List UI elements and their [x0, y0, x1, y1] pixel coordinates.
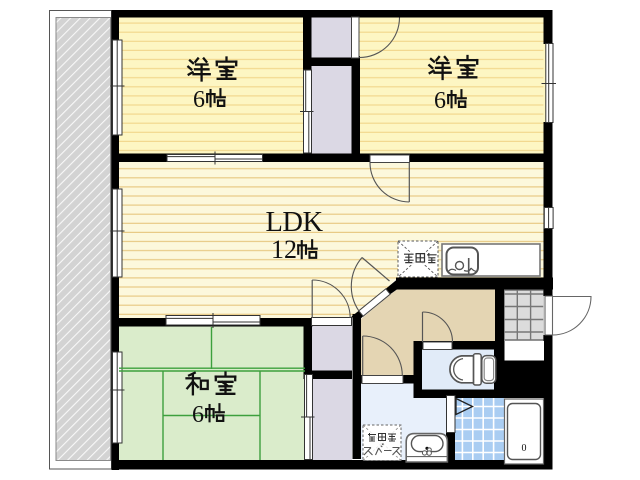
svg-text:0: 0	[522, 443, 527, 454]
svg-text:6: 6	[193, 87, 205, 113]
svg-text:6: 6	[434, 88, 446, 114]
svg-text:6: 6	[192, 402, 204, 428]
svg-text:LDK: LDK	[265, 207, 323, 238]
svg-text:12: 12	[271, 235, 297, 264]
